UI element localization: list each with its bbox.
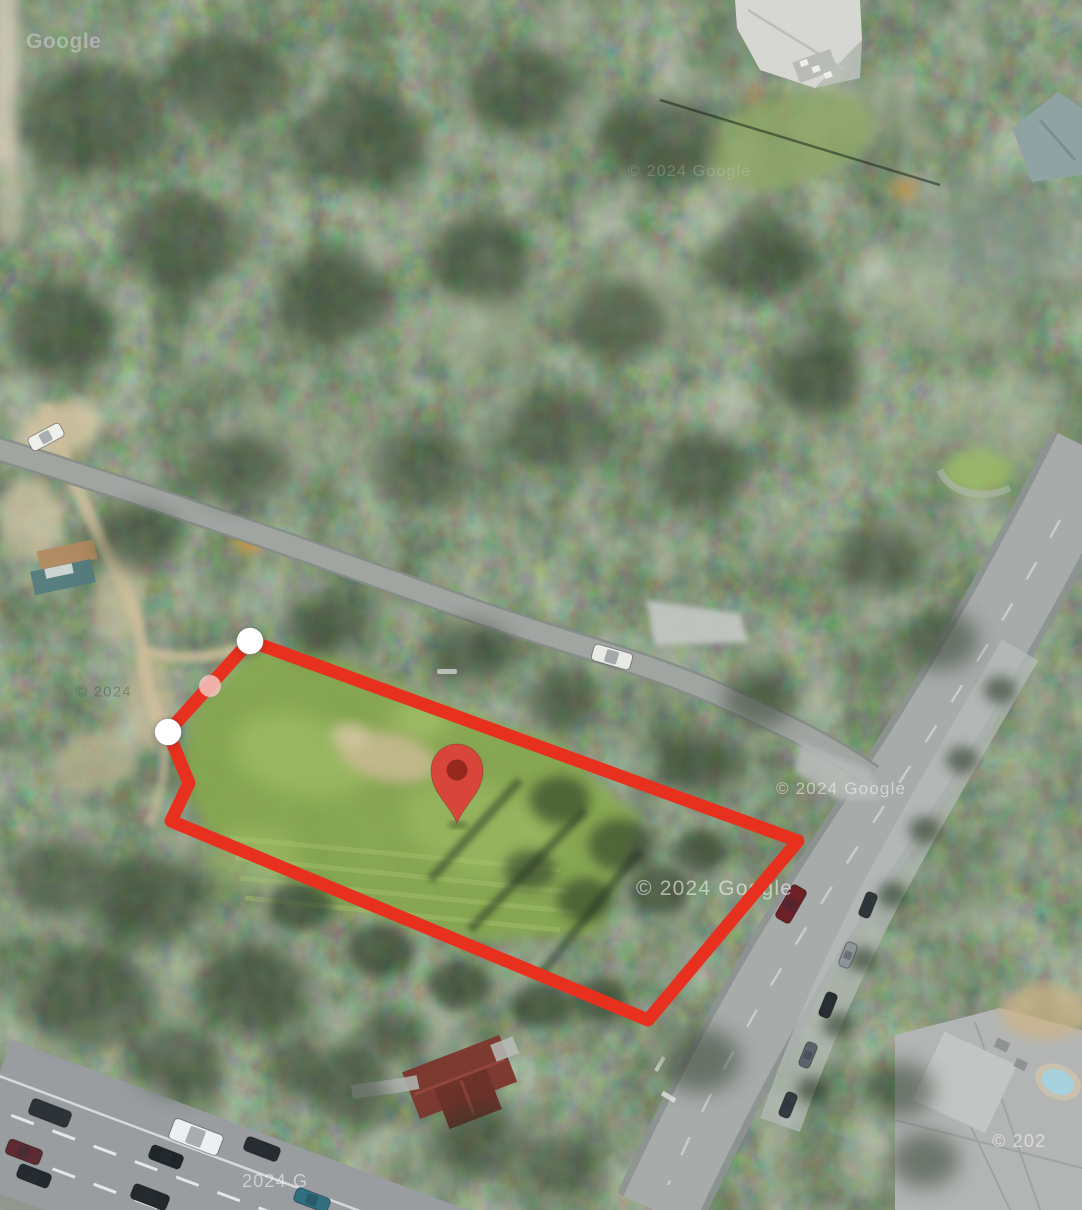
gray-dash-mark <box>437 669 457 674</box>
map-scene: © 2024 Google© 2024© 2024 Google© 2024 G… <box>0 0 1082 1210</box>
pin-shadow <box>448 821 468 829</box>
watermark-top-center: © 2024 Google <box>628 163 751 180</box>
watermark-bottom-left: 2024 G <box>242 1171 308 1191</box>
pin-center-dot <box>447 760 468 781</box>
vertex-handle-1[interactable] <box>237 628 264 655</box>
satellite-map-canvas[interactable]: © 2024 Google© 2024© 2024 Google© 2024 G… <box>0 0 1082 1210</box>
watermark-left: © 2024 <box>76 683 132 700</box>
map-dash-label <box>437 669 457 674</box>
vertex-handle-2[interactable] <box>155 719 182 746</box>
midpoint-handle[interactable] <box>199 675 221 697</box>
watermark-mid-right: © 2024 Google <box>776 779 906 798</box>
watermark-bottom-right: © 202 <box>992 1131 1046 1151</box>
